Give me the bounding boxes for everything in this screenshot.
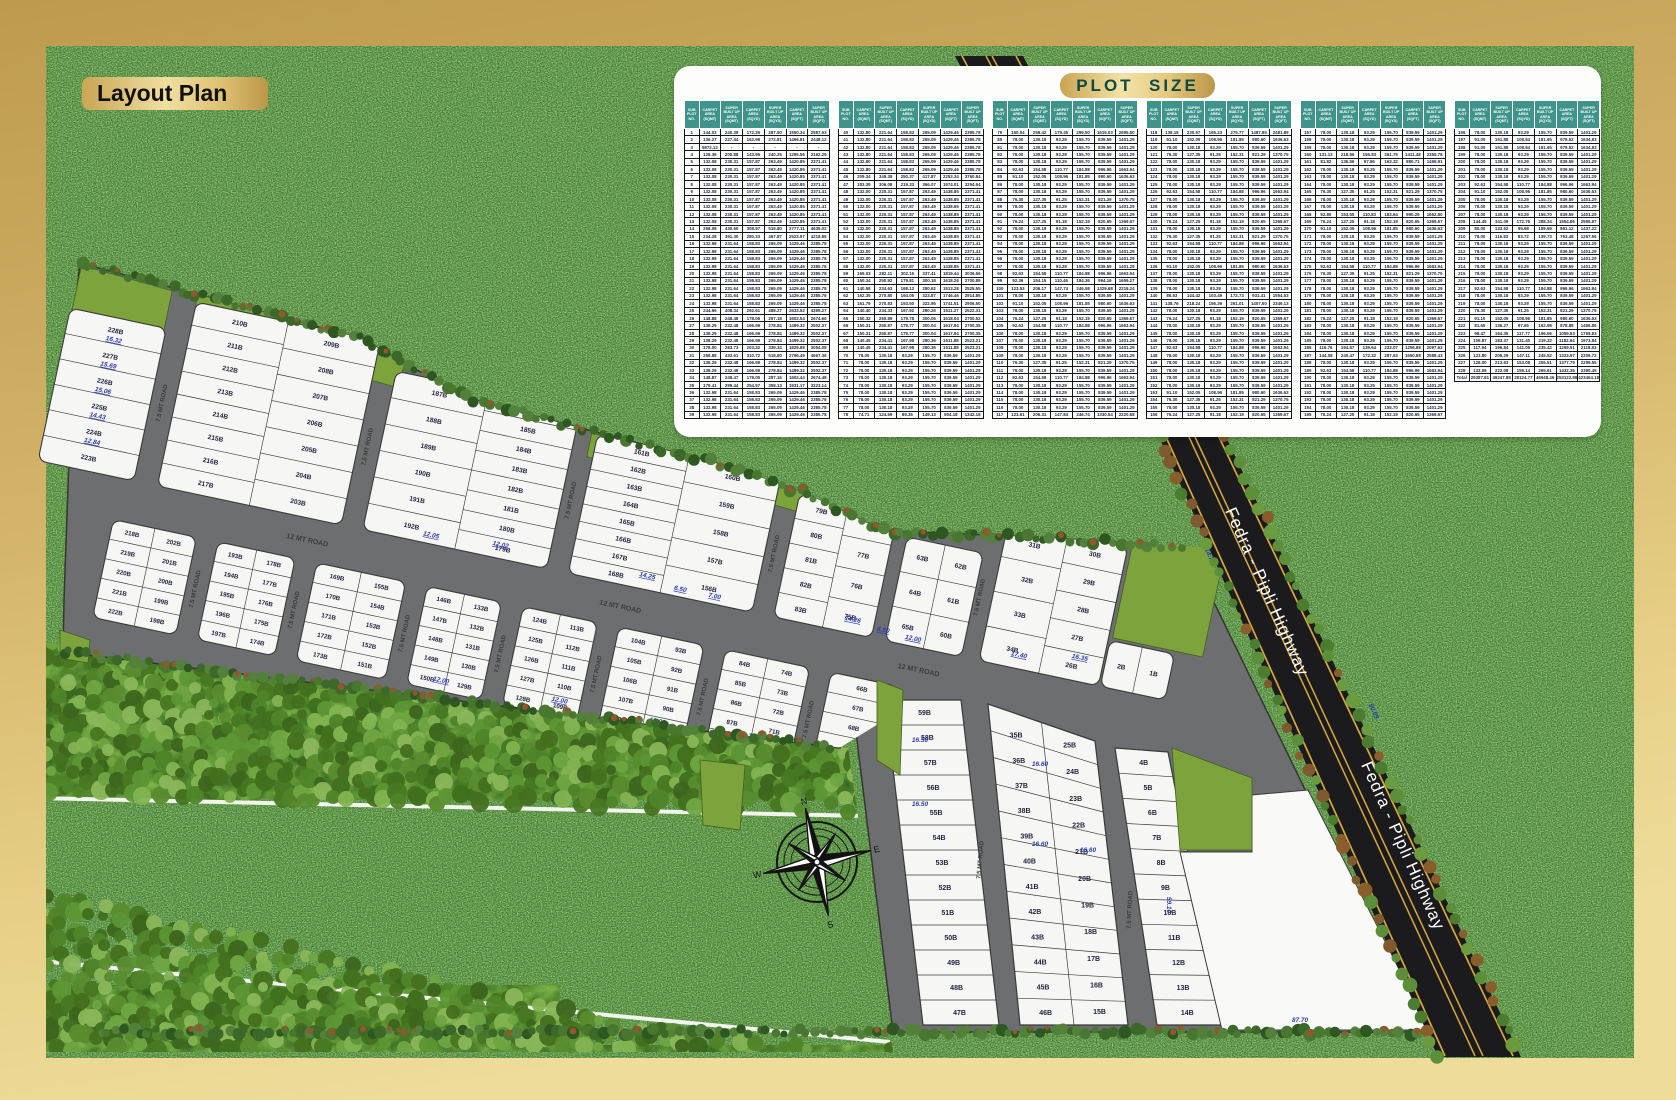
svg-text:53B: 53B <box>936 860 949 867</box>
svg-text:24B: 24B <box>1066 769 1079 776</box>
svg-text:4B: 4B <box>1139 760 1148 767</box>
svg-text:44B: 44B <box>1034 960 1047 967</box>
svg-text:59.10: 59.10 <box>1165 897 1172 914</box>
svg-text:17B: 17B <box>1087 956 1100 963</box>
svg-text:16B: 16B <box>1090 983 1103 990</box>
svg-text:16.50: 16.50 <box>912 737 929 744</box>
svg-text:8B: 8B <box>1157 860 1166 867</box>
svg-text:37B: 37B <box>1015 783 1028 790</box>
svg-text:45B: 45B <box>1037 985 1050 992</box>
svg-text:50B: 50B <box>944 935 957 942</box>
svg-text:20B: 20B <box>1078 876 1091 883</box>
svg-text:49B: 49B <box>947 960 960 967</box>
svg-text:14B: 14B <box>1181 1010 1194 1017</box>
svg-text:87.70: 87.70 <box>1292 1017 1309 1024</box>
svg-text:16.50: 16.50 <box>912 801 929 808</box>
svg-text:19B: 19B <box>1081 903 1094 910</box>
svg-text:16.60: 16.60 <box>1080 847 1097 854</box>
svg-text:15B: 15B <box>1093 1009 1106 1016</box>
svg-text:47B: 47B <box>953 1010 966 1017</box>
svg-text:22B: 22B <box>1072 823 1085 830</box>
svg-text:46B: 46B <box>1039 1010 1052 1017</box>
svg-text:25B: 25B <box>1063 743 1076 750</box>
svg-text:59B: 59B <box>918 710 931 717</box>
svg-text:12B: 12B <box>1172 960 1185 967</box>
svg-text:16.60: 16.60 <box>1032 841 1049 848</box>
svg-text:48B: 48B <box>950 985 963 992</box>
svg-text:18B: 18B <box>1084 929 1097 936</box>
svg-text:7B: 7B <box>1152 835 1161 842</box>
svg-text:52B: 52B <box>938 885 951 892</box>
svg-text:51B: 51B <box>941 910 954 917</box>
svg-text:36B: 36B <box>1012 758 1025 765</box>
svg-text:9B: 9B <box>1161 885 1170 892</box>
svg-text:54B: 54B <box>933 835 946 842</box>
svg-text:39B: 39B <box>1020 833 1033 840</box>
svg-text:11B: 11B <box>1168 935 1180 942</box>
svg-text:6B: 6B <box>1148 810 1157 817</box>
svg-text:41B: 41B <box>1026 884 1039 891</box>
svg-text:56B: 56B <box>927 785 940 792</box>
svg-text:38B: 38B <box>1018 808 1031 815</box>
svg-text:40B: 40B <box>1023 859 1036 866</box>
svg-text:13B: 13B <box>1177 985 1190 992</box>
svg-text:35B: 35B <box>1010 733 1023 740</box>
svg-text:5B: 5B <box>1144 785 1153 792</box>
svg-text:43B: 43B <box>1031 934 1044 941</box>
svg-text:23B: 23B <box>1069 796 1082 803</box>
svg-text:57B: 57B <box>924 760 937 767</box>
svg-text:42B: 42B <box>1028 909 1041 916</box>
svg-text:55B: 55B <box>930 810 943 817</box>
svg-text:16.60: 16.60 <box>1032 761 1049 768</box>
